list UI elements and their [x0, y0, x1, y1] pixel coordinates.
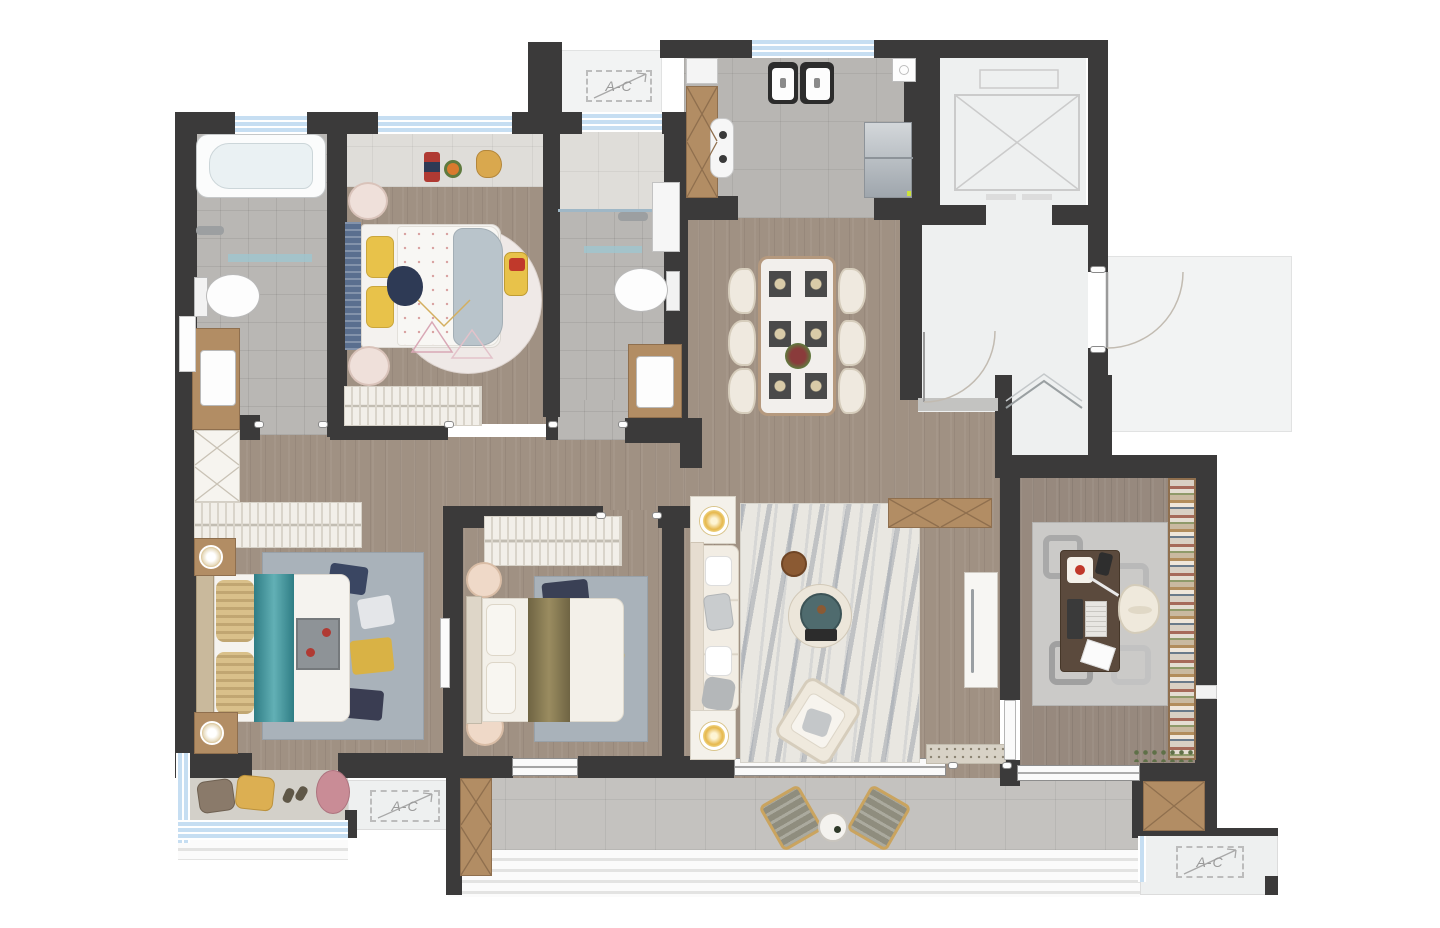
vanity-sink	[200, 350, 236, 406]
ac-label-north: A-C	[586, 70, 652, 102]
floor-guest-bath-threshold	[556, 400, 628, 440]
toy-wreath	[444, 160, 462, 178]
coffee-table	[788, 584, 852, 648]
kids-wardrobe	[344, 386, 482, 426]
master-pillow	[216, 580, 254, 642]
floor-cushion	[234, 774, 275, 812]
kids-bed	[345, 222, 503, 350]
floor-plan-canvas: A-C A-C A-C	[0, 0, 1440, 928]
floor-stair-lobby	[1106, 256, 1292, 432]
wall	[1265, 876, 1278, 895]
ac-label-text: A-C	[391, 798, 418, 814]
door-jamb	[254, 421, 264, 428]
dining-chair	[728, 368, 756, 414]
sofa	[690, 542, 740, 714]
lamp-side-table	[690, 710, 736, 760]
wall	[512, 112, 582, 134]
terrace-side-table	[818, 812, 848, 842]
table-lamp	[700, 507, 728, 535]
lamp-side-table	[690, 496, 736, 544]
door-jamb	[548, 421, 558, 428]
dining-chair	[838, 268, 866, 314]
dining-table	[758, 256, 836, 416]
bookshelf	[1168, 478, 1196, 760]
door-jamb	[618, 421, 628, 428]
sofa-pillow	[703, 592, 735, 631]
wall	[680, 443, 702, 468]
window-kids-bedroom	[378, 114, 512, 134]
master-bed-tray	[296, 618, 340, 670]
ceiling-light-bulb	[899, 65, 909, 75]
burner	[719, 131, 727, 139]
dining-chair	[838, 368, 866, 414]
floor-foyer-alcove	[1012, 375, 1090, 455]
bedroom2-pillow	[486, 604, 516, 656]
door-jamb	[318, 421, 328, 428]
sofa-pillow	[705, 646, 732, 676]
wall	[874, 40, 922, 58]
hall-closet	[194, 430, 240, 502]
study-door-leaf	[1004, 700, 1016, 760]
floor-plan: A-C A-C A-C	[0, 0, 1440, 928]
window-bathtub	[235, 114, 307, 134]
wall	[338, 753, 448, 778]
toilet-tank	[666, 271, 680, 311]
door-jamb	[1090, 266, 1106, 273]
laptop-screen	[1067, 599, 1083, 639]
shower-fixture	[196, 226, 224, 235]
console-cabinet	[888, 498, 992, 528]
sofa-pillow	[705, 556, 732, 586]
floor-elevator	[940, 58, 1086, 205]
placemat	[769, 321, 791, 347]
refrigerator-light	[907, 191, 911, 196]
bathtub-basin	[209, 143, 313, 189]
stool	[781, 551, 807, 577]
bedroom2-headboard	[466, 596, 482, 724]
master-pillow	[216, 652, 254, 714]
refrigerator	[864, 122, 912, 198]
ac-label-southwest: A-C	[370, 790, 440, 822]
wall	[307, 112, 378, 134]
toy-teddy	[476, 150, 502, 178]
wall	[995, 375, 1012, 455]
bedroom2-runner-olive	[528, 598, 570, 722]
ac-label-text: A-C	[1196, 854, 1223, 870]
rug-motif	[349, 637, 394, 675]
ceiling-light	[892, 58, 916, 82]
wall	[1000, 478, 1020, 700]
wall	[874, 196, 904, 220]
desk-phone	[1095, 552, 1114, 577]
door-leaf	[440, 618, 450, 688]
coffee-table-tray	[805, 629, 837, 641]
vanity-sink	[636, 356, 674, 408]
door-jamb	[1090, 346, 1106, 353]
plant-strip	[1132, 748, 1194, 762]
wall	[1195, 455, 1217, 685]
window-guest-bath	[582, 112, 662, 132]
window-study-south	[1017, 765, 1140, 781]
shower-fixture	[618, 212, 648, 221]
sink-faucet	[780, 78, 786, 88]
wall	[922, 205, 986, 225]
terrace-cabinet-right	[1143, 781, 1205, 831]
kitchen-double-sink	[768, 62, 834, 104]
master-nightstand	[194, 538, 236, 576]
toilet	[194, 274, 262, 320]
sink-faucet	[814, 78, 820, 88]
doormat	[926, 744, 1006, 764]
foyer-threshold	[918, 398, 998, 411]
toy-car	[504, 252, 528, 296]
nightstand-lamp	[199, 545, 223, 569]
nightstand-lamp	[200, 721, 224, 745]
toilet-bowl	[614, 268, 668, 312]
tray-cup	[322, 628, 331, 637]
table-lamp	[700, 722, 728, 750]
placemat	[805, 373, 827, 399]
window-balcony-bottom	[178, 820, 348, 840]
kids-bed-navy-cushion	[387, 266, 423, 306]
bedroom2-bed	[466, 596, 624, 724]
placemat	[805, 321, 827, 347]
master-nightstand	[194, 712, 238, 754]
wall	[1088, 375, 1112, 455]
bedroom2-nightstand	[466, 562, 502, 598]
kids-nightstand	[348, 182, 388, 220]
desk-chair-waist	[1128, 606, 1152, 614]
toy-truck	[424, 152, 440, 182]
tall-cabinet	[652, 182, 680, 252]
sofa-throw	[700, 676, 736, 713]
bath-mat	[228, 254, 312, 262]
ac-label-text: A-C	[605, 78, 632, 94]
desk-pen	[1089, 576, 1119, 597]
placemat	[805, 271, 827, 297]
window-ac-platform	[1138, 836, 1146, 882]
burner	[719, 155, 727, 163]
desk-paper	[1080, 639, 1116, 671]
kitchen-counter-corner	[686, 58, 718, 84]
sofa-back	[690, 542, 704, 714]
door-jamb	[948, 762, 958, 769]
master-runner-teal	[254, 574, 294, 722]
dining-chair	[838, 320, 866, 366]
door-jamb	[596, 512, 606, 519]
wall	[625, 418, 702, 443]
cabinet-handle	[971, 589, 974, 673]
study-desk	[1060, 550, 1120, 672]
wall	[543, 134, 560, 417]
coffee-table-dot	[817, 605, 826, 614]
bedroom2-pillow	[486, 662, 516, 714]
tray-cup	[306, 648, 315, 657]
shower-glass-line	[558, 209, 664, 212]
round-cushion	[316, 770, 350, 814]
placemat	[769, 373, 791, 399]
kids-bed-blanket	[453, 228, 503, 346]
wall	[900, 218, 922, 400]
dining-chair	[728, 268, 756, 314]
toilet-bowl	[206, 274, 260, 318]
flower-centerpiece	[785, 343, 811, 369]
wall	[922, 40, 940, 225]
balcony-outer-edge	[178, 840, 348, 860]
tray-dot	[1075, 565, 1085, 575]
wall	[662, 528, 684, 778]
wall	[922, 40, 1108, 58]
floor-shower-guest-bath	[558, 130, 664, 212]
window-kitchen	[752, 40, 874, 58]
floor-cushion	[196, 778, 236, 815]
placemat	[769, 271, 791, 297]
master-bed	[196, 572, 352, 724]
cooktop	[710, 118, 734, 178]
floor-hallway	[445, 437, 690, 510]
kids-nightstand	[348, 346, 390, 386]
wall-niche	[179, 316, 196, 372]
bathtub	[196, 134, 326, 198]
kids-bed-headboard	[345, 222, 361, 350]
rug-motif	[357, 594, 396, 629]
terrace-railing	[448, 850, 1140, 897]
wall	[660, 40, 752, 58]
door-jamb	[444, 421, 454, 428]
tall-white-cabinet	[964, 572, 998, 688]
toilet	[612, 268, 680, 314]
toy-car-roof	[509, 258, 525, 271]
door-jamb	[652, 512, 662, 519]
refrigerator-divider	[865, 157, 913, 159]
wall	[1052, 205, 1108, 225]
master-headboard	[196, 572, 214, 724]
bath-mat	[584, 246, 642, 253]
wall	[528, 42, 562, 114]
wall	[1088, 40, 1108, 272]
window-bedroom-two	[512, 758, 578, 776]
terrace-cabinet-left	[460, 778, 492, 876]
table-item	[834, 826, 841, 833]
dining-chair	[728, 320, 756, 366]
window-study-east	[1195, 685, 1217, 699]
door-jamb	[1002, 762, 1012, 769]
wall	[688, 196, 738, 220]
ac-label-southeast: A-C	[1176, 846, 1244, 878]
laptop-keyboard	[1085, 601, 1107, 637]
bedroom2-wardrobe	[484, 516, 622, 566]
wall	[995, 455, 1217, 478]
